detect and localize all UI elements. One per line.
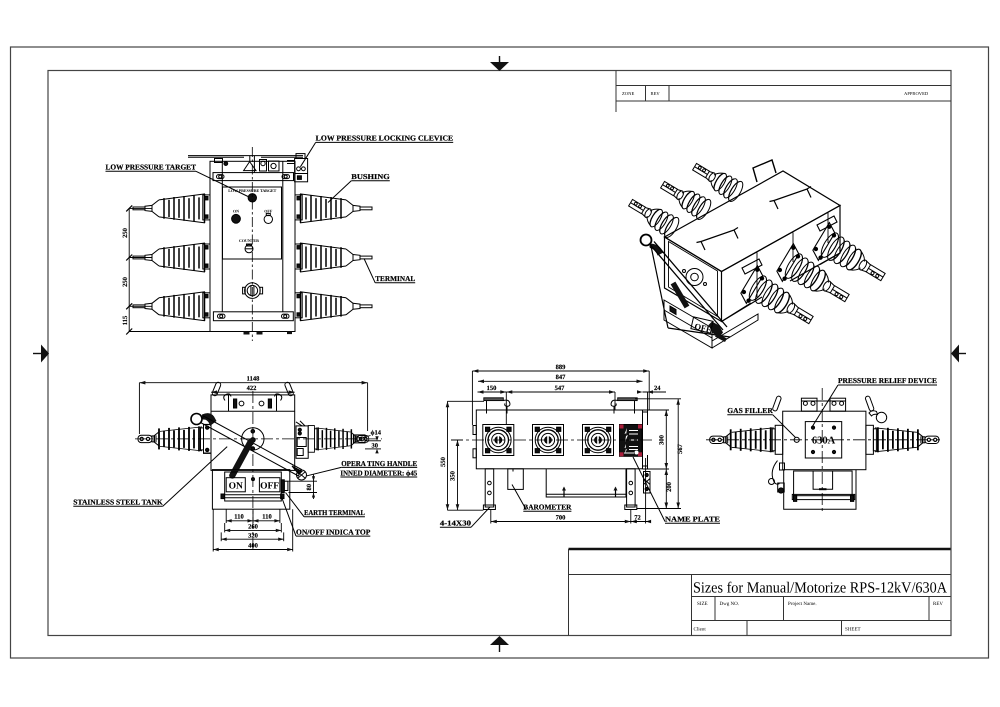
svg-text:115: 115 [122,315,129,325]
svg-text:150: 150 [487,385,497,392]
svg-text:REV: REV [933,601,943,607]
svg-text:TERMINAL: TERMINAL [375,274,415,283]
svg-text:LOW PRESSURE TARGET: LOW PRESSURE TARGET [106,163,197,172]
svg-text:110: 110 [234,514,243,521]
svg-text:Dwg NO.: Dwg NO. [720,601,739,607]
svg-text:889: 889 [556,364,567,371]
svg-text:EARTH TERMINAL: EARTH TERMINAL [304,508,365,517]
svg-text:APPROVED: APPROVED [904,91,929,96]
svg-text:COUNTER: COUNTER [239,238,259,243]
svg-text:OFF: OFF [260,481,279,491]
svg-text:630A: 630A [812,436,836,447]
svg-text:Project Name.: Project Name. [788,601,817,607]
svg-text:550: 550 [440,457,447,467]
svg-text:GAS FILLER: GAS FILLER [727,406,773,415]
svg-text:547: 547 [555,385,566,392]
svg-text:ϕ14: ϕ14 [371,430,382,437]
svg-text:NAME PLATE: NAME PLATE [665,515,720,524]
svg-text:Sizes for Manual/Motorize RPS-: Sizes for Manual/Motorize RPS-12kV/630A [693,580,948,597]
svg-text:PRESSURE RELIEF DEVICE: PRESSURE RELIEF DEVICE [838,376,937,385]
svg-text:SIZE: SIZE [697,601,708,607]
svg-text:SHEET: SHEET [845,627,861,633]
svg-text:INNED DIAMETER: ϕ45: INNED DIAMETER: ϕ45 [340,468,417,477]
svg-text:250: 250 [122,277,129,287]
svg-text:REV: REV [651,91,661,96]
svg-text:80: 80 [306,484,313,491]
svg-text:LOW PRESSURE LOCKING CLEVICE: LOW PRESSURE LOCKING CLEVICE [316,134,454,143]
svg-text:260: 260 [248,523,258,530]
svg-text:Client: Client [694,627,707,633]
svg-text:300: 300 [659,435,666,445]
svg-text:72: 72 [634,514,641,521]
svg-text:30: 30 [372,443,379,450]
svg-text:OFF: OFF [264,209,273,214]
svg-text:STAINLESS STEEL TANK: STAINLESS STEEL TANK [73,498,163,507]
svg-text:567: 567 [677,443,684,454]
svg-text:24: 24 [654,385,661,392]
svg-text:OPERA TING HANDLE: OPERA TING HANDLE [341,459,417,468]
svg-text:350: 350 [450,471,457,481]
svg-text:110: 110 [262,514,271,521]
svg-text:ZONE: ZONE [622,91,634,96]
svg-text:ON: ON [229,481,243,491]
svg-text:320: 320 [248,532,258,539]
svg-text:1148: 1148 [247,376,260,383]
svg-text:ON/OFF INDICA TOP: ON/OFF INDICA TOP [296,527,371,536]
svg-text:200: 200 [666,482,673,492]
svg-text:700: 700 [556,514,566,521]
svg-text:ON: ON [233,209,239,214]
svg-text:BUSHING: BUSHING [351,172,390,181]
svg-text:847: 847 [556,374,567,381]
svg-text:4-14X30: 4-14X30 [440,519,471,528]
svg-text:422: 422 [247,385,257,392]
svg-text:250: 250 [122,228,129,238]
svg-text:400: 400 [248,543,258,550]
svg-text:BAROMETER: BAROMETER [523,503,572,512]
